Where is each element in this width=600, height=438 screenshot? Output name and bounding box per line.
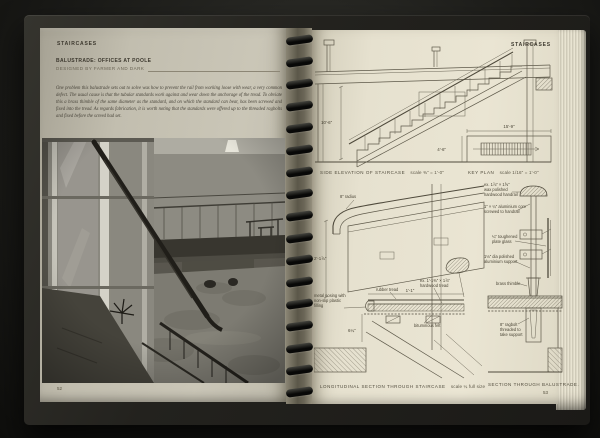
spiral-coil — [286, 100, 314, 112]
side-elevation-label: SIDE ELEVATION OF STAIRCASE — [320, 170, 405, 175]
long-section-label: LONGITUDINAL SECTION THROUGH STAIRCASE — [320, 384, 446, 389]
key-plan-scale: scale 1/16" = 1'-0" — [500, 170, 539, 175]
wall-block — [536, 78, 552, 90]
spiral-binding — [284, 30, 316, 406]
spiral-coil — [286, 276, 314, 288]
hardwood-tread-annotation-2: hardwood tread — [420, 283, 449, 288]
rubber-tread-annotation: rubber tread — [376, 287, 399, 292]
spiral-coil — [286, 34, 314, 46]
longitudinal-section: 8" radius — [314, 184, 484, 378]
handrail-annotation-3: hardwood handrail — [484, 192, 518, 197]
steps — [357, 66, 522, 156]
ragbolt-sleeve — [526, 308, 541, 342]
stair-handrail — [349, 52, 513, 144]
byline: DESIGNED BY FARMER AND DARK — [56, 66, 144, 71]
title-rule — [148, 71, 280, 72]
left-page: STAIRCASES BALUSTRADE: OFFICES AT POOLE … — [40, 28, 286, 402]
hardwood-tread — [368, 304, 464, 311]
balustrade-section-label: SECTION THROUGH BALUSTRADE. — [488, 382, 579, 387]
spiral-coil — [286, 166, 314, 178]
balustrade-section: ex. 1⅞" × 1⅝" wax polished hardwood hand… — [484, 182, 562, 372]
riser-dim: 6¼" — [348, 328, 356, 333]
spiral-coil — [286, 298, 314, 310]
left-page-number: 52 — [57, 386, 62, 391]
thimble-annotation: brass thimble — [496, 281, 521, 286]
spiral-coil — [286, 254, 314, 266]
staircase-photo — [42, 138, 285, 383]
spiral-coil — [286, 188, 314, 200]
support-annotation-2: aluminium support — [484, 259, 518, 264]
spiral-coil — [286, 210, 314, 222]
post-cap — [324, 40, 334, 45]
handrail-profile — [520, 186, 547, 196]
felt-annotation: bituminous felt — [414, 323, 441, 328]
brass-thimble — [528, 278, 539, 296]
intro-paragraph: One problem this balustrade sets out to … — [56, 85, 282, 120]
right-page-number: 53 — [543, 390, 548, 395]
half-landing — [419, 92, 465, 116]
spiral-coil — [286, 232, 314, 244]
spiral-coil — [286, 56, 314, 68]
right-page: STAIRCASES — [312, 30, 558, 404]
wall-hatch — [548, 348, 562, 372]
height-dimension: 10'-6" — [321, 120, 333, 125]
page-title: BALUSTRADE: OFFICES AT POOLE — [56, 58, 151, 64]
long-section-scale: scale ¼ full size — [451, 384, 485, 389]
side-elevation-drawing: 10'-6" 15'-9" 4'-6" — [315, 36, 557, 168]
glass-annotation-2: plate glass — [492, 239, 512, 244]
ragbolt-annotation-3: take support — [500, 332, 523, 337]
glass-panel — [348, 202, 484, 292]
key-plan-label: KEY PLAN — [468, 170, 494, 175]
spiral-coil — [286, 320, 314, 332]
spiral-coil — [286, 78, 314, 90]
section-drawings: 8" radius — [314, 180, 564, 380]
handrail-cut-section — [446, 258, 469, 273]
radius-annotation: 8" radius — [340, 194, 356, 199]
spiral-coil — [286, 364, 314, 376]
keyplan-length-dim: 15'-9" — [503, 124, 515, 129]
spiral-coil — [286, 144, 314, 156]
spiral-coil — [286, 342, 314, 354]
spiral-coil — [286, 122, 314, 134]
key-plan: 15'-9" 4'-6" — [437, 124, 551, 162]
keyplan-width-dim: 4'-6" — [437, 147, 446, 152]
photograph-of-open-book: STAIRCASES BALUSTRADE: OFFICES AT POOLE … — [0, 0, 600, 438]
left-running-head: STAIRCASES — [57, 41, 97, 47]
core-annotation-2: screwed to handrail — [484, 209, 520, 214]
side-elevation-scale: scale ⅜" = 1'-0" — [410, 170, 444, 175]
spiral-coil — [286, 386, 314, 398]
tread-width-dim: 1'-1" — [406, 288, 415, 293]
concrete-landing — [314, 348, 366, 372]
